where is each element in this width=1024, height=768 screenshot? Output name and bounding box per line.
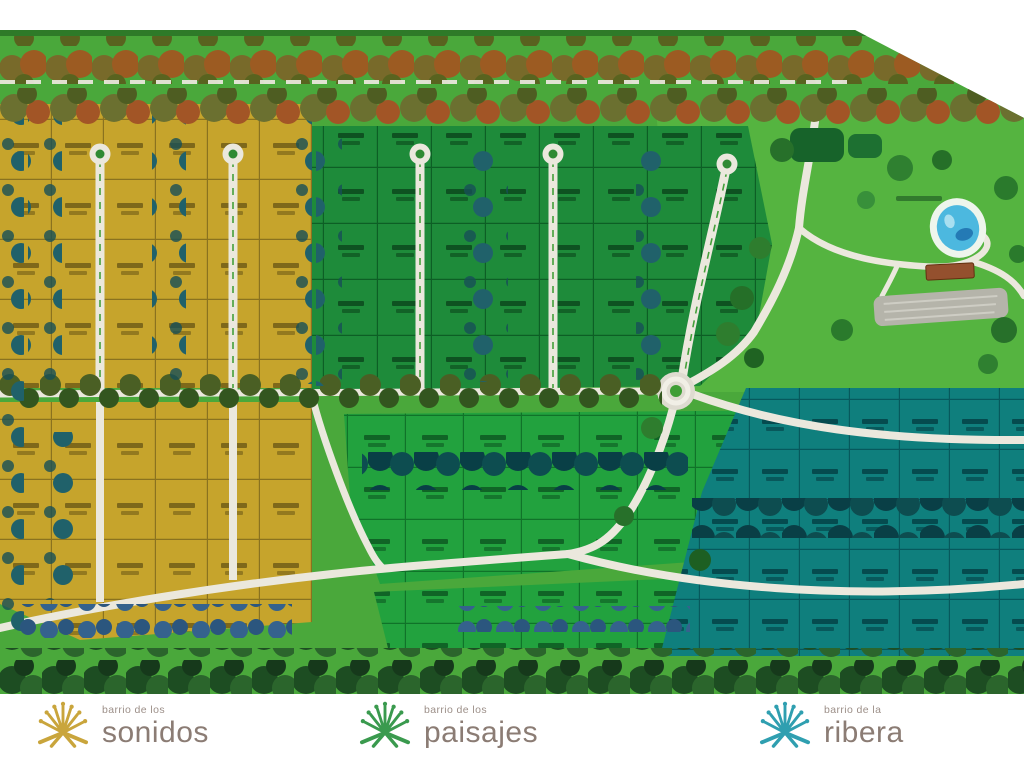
map-top-edge bbox=[0, 30, 1024, 36]
tree-icon bbox=[744, 348, 764, 368]
tree-column-paisajes-mid bbox=[462, 150, 508, 382]
tree-column-sonidos-2 bbox=[152, 112, 186, 380]
logo-sonidos-name: sonidos bbox=[102, 717, 209, 749]
logo-paisajes-prefix: barrio de los bbox=[424, 704, 538, 717]
logo-ribera-prefix: barrio de la bbox=[824, 704, 904, 717]
tree-icon bbox=[730, 286, 754, 310]
tree-column-sonidos-1 bbox=[28, 112, 62, 380]
tree-band-top-row2 bbox=[0, 84, 1024, 128]
tree-icon bbox=[991, 317, 1017, 343]
logo-paisajes-name: paisajes bbox=[424, 717, 538, 749]
logo-paisajes: barrio de los paisajes bbox=[356, 698, 538, 750]
tree-icon bbox=[749, 237, 771, 259]
tree-column-paisajes-left bbox=[316, 130, 342, 386]
tree-column-sonidos-3 bbox=[284, 112, 312, 384]
park-label-mark bbox=[896, 196, 942, 201]
tree-row-paisajes-mid bbox=[362, 452, 688, 490]
tree-icon bbox=[614, 506, 634, 526]
park-hedge-1 bbox=[790, 128, 844, 162]
roundabout bbox=[657, 372, 695, 410]
logo-sonidos-prefix: barrio de los bbox=[102, 704, 209, 717]
logo-sonidos: barrio de los sonidos bbox=[34, 698, 209, 750]
logo-ribera-name: ribera bbox=[824, 717, 904, 749]
tree-icon bbox=[641, 417, 663, 439]
tree-column-paisajes-right bbox=[636, 150, 662, 380]
flower-icon bbox=[756, 700, 814, 750]
park-hedge-2 bbox=[848, 134, 882, 158]
tree-row-ribera-mid bbox=[692, 498, 1024, 538]
tree-icon bbox=[831, 319, 853, 341]
tree-icon bbox=[932, 150, 952, 170]
tree-icon bbox=[857, 191, 875, 209]
tree-row-paisajes-blue bbox=[458, 606, 690, 632]
tree-icon bbox=[978, 354, 998, 374]
tree-column-left-edge bbox=[0, 108, 24, 632]
clubhouse-building bbox=[926, 263, 975, 280]
tree-icon bbox=[716, 322, 740, 346]
tree-band-top-row1 bbox=[0, 36, 1024, 84]
tree-icon bbox=[994, 176, 1018, 200]
logo-ribera: barrio de la ribera bbox=[756, 698, 904, 750]
masterplan-map bbox=[0, 0, 1024, 768]
masterplan-page: barrio de los sonidos barrio de los pais… bbox=[0, 0, 1024, 768]
tree-column-sonidos-lower bbox=[36, 432, 74, 600]
tree-icon bbox=[689, 549, 711, 571]
flower-icon bbox=[34, 700, 92, 750]
tree-row-sonidos-blue bbox=[20, 604, 292, 638]
tree-icon bbox=[887, 155, 913, 181]
tree-band-bottom bbox=[0, 648, 1024, 694]
tree-icon bbox=[770, 138, 794, 162]
flower-icon bbox=[356, 700, 414, 750]
